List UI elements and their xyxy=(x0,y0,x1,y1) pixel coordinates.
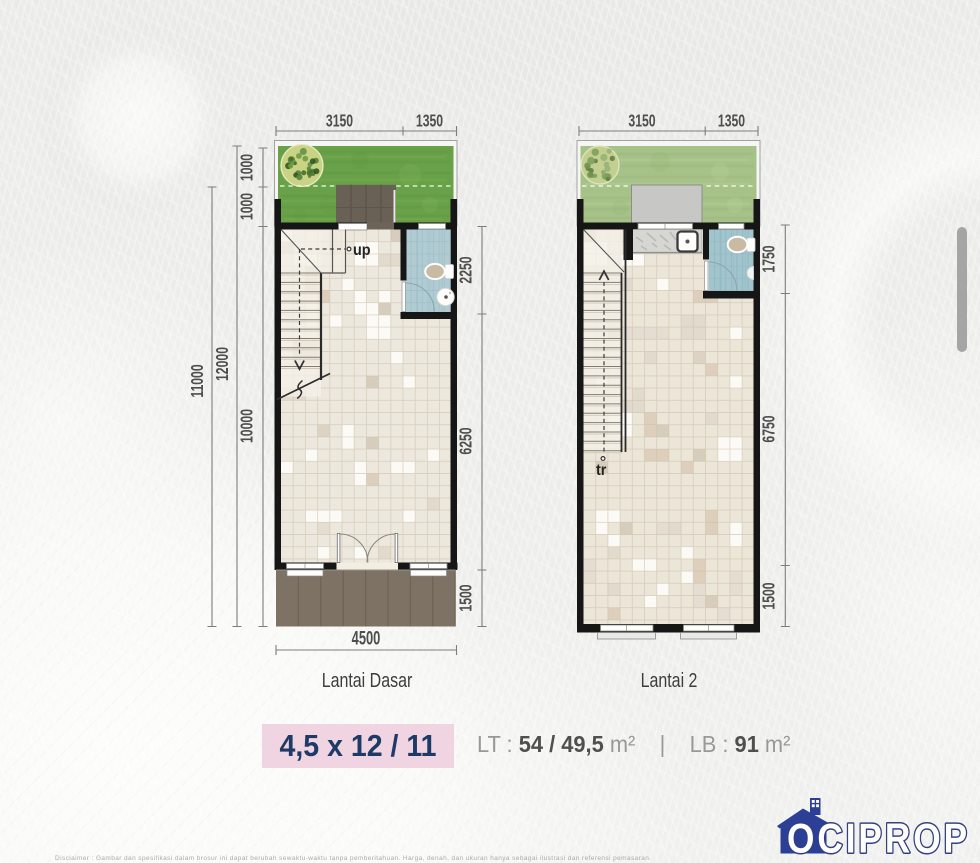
svg-text:1000: 1000 xyxy=(237,154,257,181)
svg-text:12000: 12000 xyxy=(213,347,233,381)
svg-text:11000: 11000 xyxy=(190,364,208,397)
svg-text:1350: 1350 xyxy=(416,111,443,131)
svg-text:Lantai 2: Lantai 2 xyxy=(641,668,698,691)
svg-text:4500: 4500 xyxy=(352,628,381,649)
svg-text:6250: 6250 xyxy=(456,427,476,454)
svg-text:3150: 3150 xyxy=(326,111,353,131)
svg-text:10000: 10000 xyxy=(237,409,257,443)
svg-text:6750: 6750 xyxy=(759,415,779,442)
svg-text:Lantai Dasar: Lantai Dasar xyxy=(322,668,413,691)
svg-text:2250: 2250 xyxy=(456,256,476,283)
svg-text:tr: tr xyxy=(596,461,606,479)
svg-text:1500: 1500 xyxy=(759,582,779,609)
svg-text:up: up xyxy=(353,241,371,259)
svg-text:1000: 1000 xyxy=(237,193,257,220)
svg-text:3150: 3150 xyxy=(628,111,655,131)
svg-text:1350: 1350 xyxy=(718,111,745,131)
svg-text:1500: 1500 xyxy=(456,584,476,611)
svg-text:1750: 1750 xyxy=(759,245,779,272)
